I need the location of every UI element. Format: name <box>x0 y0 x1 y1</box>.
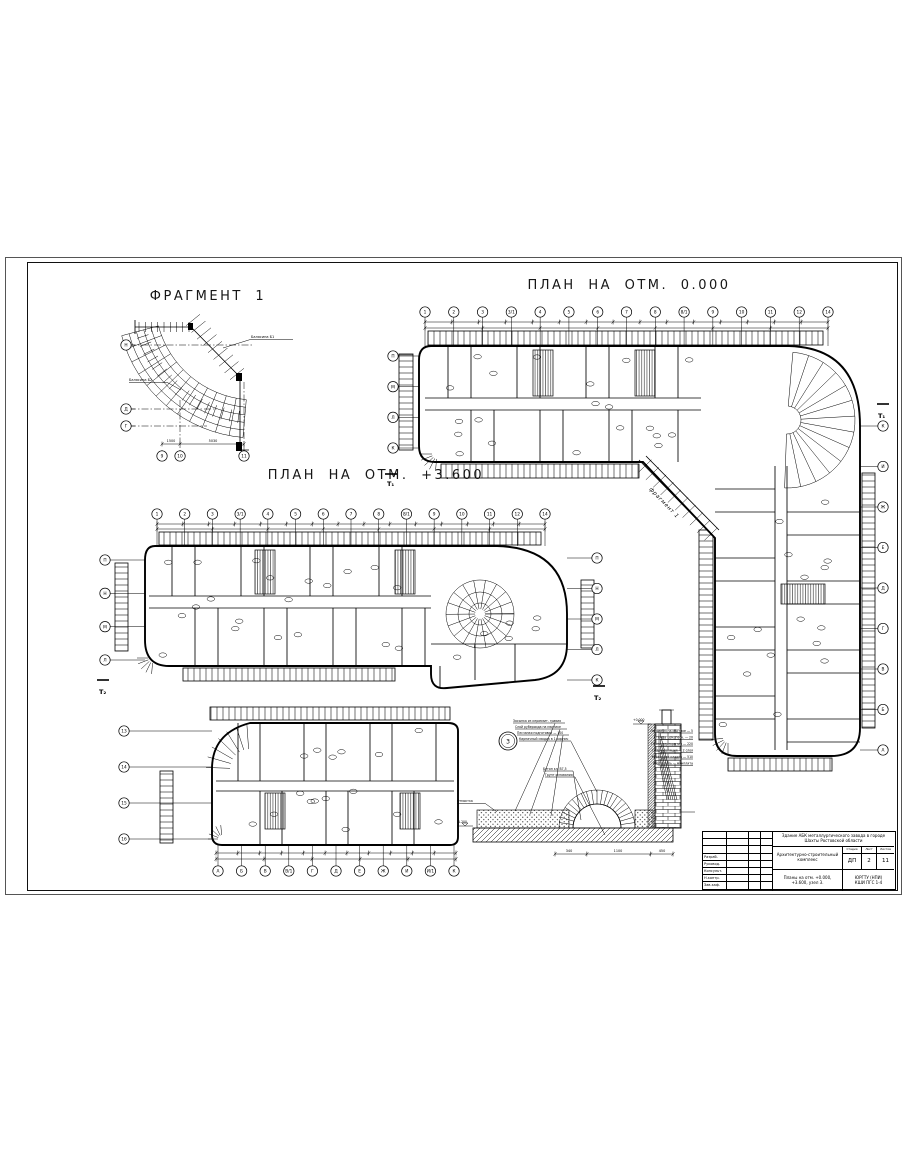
svg-text:К: К <box>881 424 884 430</box>
svg-text:Н: Н <box>103 591 106 597</box>
svg-text:7: 7 <box>625 310 628 316</box>
stage-grid: Стадия Лист Листов ДП 2 11 <box>843 847 894 870</box>
svg-text:М: М <box>595 617 599 623</box>
west-balcony-band <box>115 563 128 651</box>
svg-text:10: 10 <box>459 512 465 518</box>
baluster-callout-2: Балясина Б2 <box>129 378 152 382</box>
svg-text:8: 8 <box>654 310 657 316</box>
svg-text:14: 14 <box>542 512 548 518</box>
wing-south-band <box>728 758 832 771</box>
stair-block <box>533 350 553 396</box>
wall-post <box>188 323 193 330</box>
svg-text:Кирпичный сводик в 1 кирпич: Кирпичный сводик в 1 кирпич <box>519 737 569 741</box>
axis-lines <box>129 345 253 452</box>
svg-text:Утеплитель — минплита: Утеплитель — минплита <box>653 762 693 766</box>
brick-arch-fan <box>559 790 635 828</box>
svg-text:3: 3 <box>481 310 484 316</box>
svg-text:П: П <box>391 354 394 360</box>
svg-text:3/1: 3/1 <box>237 512 244 518</box>
svg-text:Стяжка цем.-песч. — 20: Стяжка цем.-песч. — 20 <box>654 736 693 740</box>
south-balcony-band <box>183 668 395 681</box>
svg-text:12: 12 <box>515 512 521 518</box>
svg-text:7: 7 <box>350 512 353 518</box>
stair-block <box>781 584 825 604</box>
svg-text:Линолеум на мастике — 5: Линолеум на мастике — 5 <box>650 729 693 733</box>
elevation-mark-top: +0.000 <box>633 718 651 724</box>
svg-text:1: 1 <box>424 310 427 316</box>
dim-value: 5030 <box>209 439 218 443</box>
sign-row-label: Руковод. <box>703 861 727 867</box>
base-slab <box>473 828 673 842</box>
svg-text:11: 11 <box>768 310 774 316</box>
svg-text:И/1: И/1 <box>427 869 435 875</box>
svg-text:Гидроизоляция — 2 слоя: Гидроизоляция — 2 слоя <box>652 749 693 753</box>
dim-value: 450 <box>659 849 665 853</box>
plan-3600-drawing: 1233/1456788/1910111214 ПНМЛ ПНМЛК Т₂ Т₂ <box>95 468 610 705</box>
svg-text:13: 13 <box>121 729 127 735</box>
plan-0000-title: ПЛАН НА ОТМ. 0.000 <box>498 278 760 293</box>
node-3-detail-drawing: 3 Засыпка из керамзит. гравия Слой рубер… <box>455 708 695 863</box>
insulation-strip <box>648 724 655 828</box>
sign-row-label: Разраб. <box>703 854 727 860</box>
svg-text:Засыпка из керамзит. гравия: Засыпка из керамзит. гравия <box>513 719 561 723</box>
project-name: Здание АБК металлургического завода в го… <box>773 832 894 847</box>
stair-block <box>400 793 420 829</box>
title-block: Разраб. Руковод. Консульт. Н.контр. Зав.… <box>702 831 896 890</box>
paving-layers-left <box>477 810 569 828</box>
svg-text:А: А <box>882 748 885 754</box>
stage-value: ДП <box>843 854 862 871</box>
stair-block <box>635 350 655 396</box>
dim-value: 340 <box>566 849 572 853</box>
svg-text:Кирпичная кладка — 510: Кирпичная кладка — 510 <box>652 755 693 759</box>
north-balcony-band <box>428 331 823 345</box>
svg-text:9: 9 <box>161 454 164 460</box>
organization-cell: ЮРГТУ (НПИ) КШИ ПГС 1-4 <box>843 870 894 891</box>
svg-text:Бетон кл. В7,5: Бетон кл. В7,5 <box>543 767 567 771</box>
svg-text:10: 10 <box>739 310 745 316</box>
svg-text:Е: Е <box>358 869 361 875</box>
svg-text:11: 11 <box>241 454 247 460</box>
svg-text:+0.000: +0.000 <box>633 718 644 722</box>
wall-post <box>236 373 242 381</box>
svg-text:Н: Н <box>595 586 598 592</box>
fragment-bottom-axis-bubbles: 91011 <box>157 450 249 461</box>
svg-text:В: В <box>882 667 885 673</box>
north-balcony-band <box>210 707 450 720</box>
svg-text:6: 6 <box>596 310 599 316</box>
svg-text:Б: Б <box>882 707 885 713</box>
svg-text:3: 3 <box>211 512 214 518</box>
svg-text:14: 14 <box>825 310 831 316</box>
svg-text:9: 9 <box>433 512 436 518</box>
svg-text:Песчаная подготовка — 100: Песчаная подготовка — 100 <box>517 731 563 735</box>
section-mark-right: Т₁ <box>878 412 885 420</box>
svg-text:Г: Г <box>311 869 314 875</box>
svg-text:12: 12 <box>796 310 802 316</box>
svg-text:Л: Л <box>595 647 598 653</box>
sign-row-label: Консульт. <box>703 868 727 874</box>
svg-text:8/1: 8/1 <box>681 310 688 316</box>
svg-text:Ж: Ж <box>881 505 886 511</box>
svg-text:Г: Г <box>882 626 885 632</box>
svg-text:4: 4 <box>539 310 542 316</box>
sign-row-label: Зав.каф. <box>703 882 727 889</box>
node-number: 3 <box>506 738 510 745</box>
sheet-number: 2 <box>862 854 877 871</box>
svg-text:К: К <box>452 869 455 875</box>
west-balcony-band <box>399 354 413 450</box>
svg-text:П: П <box>103 558 106 564</box>
svg-text:П: П <box>595 556 598 562</box>
sheet-title: Планы на отм. +0.000, +3.600, узел 3. <box>773 870 843 891</box>
svg-text:Грунт основания: Грунт основания <box>545 773 573 777</box>
document-name: Архитектурно-строительный комплекс <box>773 847 843 870</box>
stair-block <box>395 550 415 594</box>
north-balcony-band <box>159 532 541 545</box>
svg-text:11: 11 <box>487 512 493 518</box>
svg-text:В: В <box>264 869 267 875</box>
sw-corner-fan <box>137 658 153 674</box>
fragment-walls <box>135 320 249 450</box>
svg-text:Н: Н <box>124 343 127 349</box>
upper-flight-treads <box>186 314 244 379</box>
svg-text:2: 2 <box>183 512 186 518</box>
svg-text:А: А <box>217 869 220 875</box>
svg-text:3/1: 3/1 <box>508 310 515 316</box>
wall-post <box>236 442 242 451</box>
stair-block <box>265 793 285 829</box>
svg-text:8: 8 <box>377 512 380 518</box>
svg-text:Л: Л <box>391 415 394 421</box>
drawing-sheet: ФРАГМЕНТ 1 ПЛАН НА ОТМ. 0.000 ПЛАН НА ОТ… <box>0 0 910 1155</box>
svg-text:И: И <box>881 464 884 470</box>
signature-table: Разраб. Руковод. Консульт. Н.контр. Зав.… <box>703 832 773 891</box>
svg-text:В/1: В/1 <box>285 869 292 875</box>
svg-text:1: 1 <box>156 512 159 518</box>
svg-text:8/1: 8/1 <box>403 512 410 518</box>
west-balcony-band <box>160 771 173 843</box>
fragment-1-drawing: НДГ 91011 1500 5030 Балясина Б1 Балясина… <box>105 282 315 477</box>
group-code: КШИ ПГС 1-4 <box>855 881 882 886</box>
svg-text:М: М <box>391 384 395 390</box>
detail-left-note: Отмостка <box>457 799 473 803</box>
bottom-axis-bubbles: АБВВ/1ГДЕЖИИ/1К <box>213 845 459 876</box>
dim-value: 1500 <box>167 439 176 443</box>
svg-text:Б: Б <box>240 869 243 875</box>
right-axis-bubbles: ПНМЛК <box>567 553 602 685</box>
section-mark-right: Т₂ <box>594 694 601 702</box>
svg-text:14: 14 <box>121 765 127 771</box>
svg-text:6: 6 <box>322 512 325 518</box>
sign-row-label: Н.контр. <box>703 875 727 881</box>
svg-text:Е: Е <box>882 545 885 551</box>
wing-east-band <box>862 473 875 728</box>
dim-value: 1100 <box>614 849 623 853</box>
svg-text:9: 9 <box>711 310 714 316</box>
svg-text:16: 16 <box>121 837 127 843</box>
svg-text:И: И <box>405 869 408 875</box>
svg-text:М: М <box>103 624 107 630</box>
svg-text:2: 2 <box>452 310 455 316</box>
svg-text:К: К <box>391 446 394 452</box>
svg-text:Г: Г <box>125 424 128 430</box>
callout-leader <box>223 339 293 348</box>
stair-block <box>255 550 275 594</box>
svg-text:Ж: Ж <box>381 869 386 875</box>
svg-text:15: 15 <box>121 801 127 807</box>
svg-text:Л: Л <box>103 658 106 664</box>
svg-text:К: К <box>595 678 598 684</box>
lower-wing-plan-drawing: АБВВ/1ГДЕЖИИ/1К 13141516 <box>100 693 480 883</box>
svg-text:5: 5 <box>568 310 571 316</box>
wing-west-band <box>699 530 713 740</box>
svg-text:Плита перекрытия — 220: Плита перекрытия — 220 <box>651 742 693 746</box>
baluster-callout-1: Балясина Б1 <box>251 335 274 339</box>
svg-text:-1.200: -1.200 <box>457 820 467 824</box>
svg-text:10: 10 <box>177 454 183 460</box>
building-outline <box>212 723 458 845</box>
svg-text:5: 5 <box>294 512 297 518</box>
sheets-total: 11 <box>877 854 894 871</box>
pipe <box>662 710 671 724</box>
elevation-mark-left: -1.200 <box>457 820 473 826</box>
svg-text:4: 4 <box>266 512 269 518</box>
